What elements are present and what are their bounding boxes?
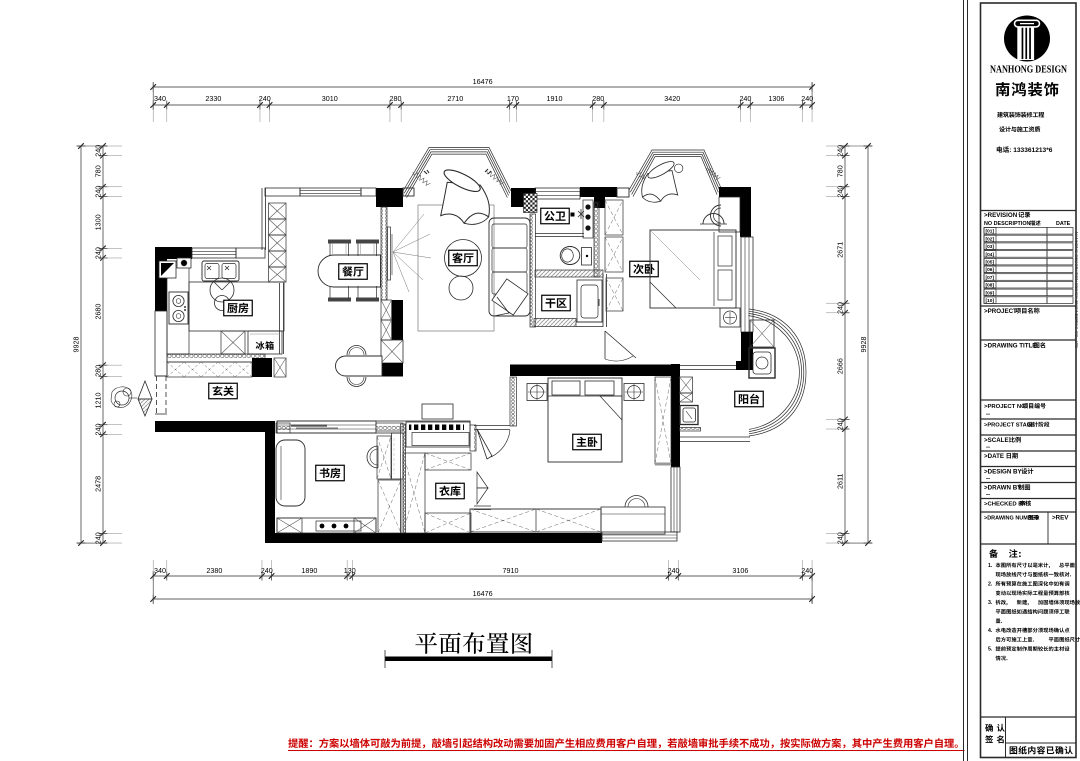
svg-text:>REV: >REV <box>1052 515 1069 522</box>
svg-text:[06]: [06] <box>986 267 995 273</box>
svg-text:170: 170 <box>507 94 519 103</box>
svg-text:2330: 2330 <box>205 94 221 103</box>
svg-text:2680: 2680 <box>94 304 103 320</box>
svg-text:780: 780 <box>94 165 103 177</box>
svg-text:2710: 2710 <box>447 94 463 103</box>
svg-text:4.: 4. <box>988 628 993 634</box>
svg-text:[10]: [10] <box>986 298 995 304</box>
svg-text:[09]: [09] <box>986 290 995 296</box>
svg-text:340: 340 <box>154 94 166 103</box>
svg-text:9928: 9928 <box>859 337 868 353</box>
svg-text:[08]: [08] <box>986 283 995 289</box>
svg-text:>DATE: >DATE <box>984 453 1004 460</box>
svg-text:780: 780 <box>836 165 845 177</box>
svg-text:2380: 2380 <box>206 566 222 575</box>
svg-text:3106: 3106 <box>732 566 748 575</box>
svg-text:240: 240 <box>667 566 679 575</box>
svg-text:1.: 1. <box>988 563 993 569</box>
svg-text:>PROJECT STAGE: >PROJECT STAGE <box>984 423 1035 429</box>
svg-text:1210: 1210 <box>93 393 102 409</box>
svg-text:240: 240 <box>801 94 813 103</box>
svg-text:240: 240 <box>93 247 102 259</box>
svg-text:240: 240 <box>739 94 751 103</box>
svg-text:240: 240 <box>259 94 271 103</box>
svg-text:280: 280 <box>592 94 604 103</box>
svg-text:--: -- <box>986 411 990 418</box>
svg-text:7910: 7910 <box>503 566 519 575</box>
svg-text:>SCALE: >SCALE <box>984 437 1009 444</box>
svg-text:280: 280 <box>390 94 402 103</box>
svg-text:130: 130 <box>344 566 356 575</box>
svg-text:1300: 1300 <box>94 214 103 230</box>
svg-text:>CHECKED BY: >CHECKED BY <box>984 502 1026 508</box>
svg-text:2.: 2. <box>988 582 993 588</box>
svg-text:1890: 1890 <box>301 566 317 575</box>
svg-text:[04]: [04] <box>986 252 995 258</box>
svg-text:16476: 16476 <box>473 77 493 86</box>
svg-text:[05]: [05] <box>986 260 995 266</box>
svg-text:240: 240 <box>835 302 844 314</box>
svg-text:2666: 2666 <box>836 358 845 374</box>
svg-text:--: -- <box>986 492 990 499</box>
svg-text:240: 240 <box>801 566 813 575</box>
svg-text:NANHONG DECORATION DESIGN ENGI: NANHONG DECORATION DESIGN ENGINEERING CO… <box>1074 232 1079 348</box>
svg-text:240: 240 <box>261 566 273 575</box>
svg-text:1910: 1910 <box>547 94 563 103</box>
svg-text:240: 240 <box>836 145 845 157</box>
svg-text:240: 240 <box>94 145 103 157</box>
svg-text:[01]: [01] <box>986 229 995 235</box>
svg-text:DATE: DATE <box>1056 221 1071 227</box>
svg-text:: 133361213*6: : 133361213*6 <box>1009 147 1053 154</box>
svg-text:NO DESCRIPTION: NO DESCRIPTION <box>984 221 1031 227</box>
svg-text:2671: 2671 <box>835 242 844 258</box>
svg-text:3.: 3. <box>988 600 993 606</box>
svg-text:>REVISION: >REVISION <box>984 212 1018 219</box>
svg-text:5.: 5. <box>988 647 993 653</box>
svg-text:240: 240 <box>94 532 103 544</box>
svg-text:1306: 1306 <box>768 94 784 103</box>
svg-text:16476: 16476 <box>473 589 493 598</box>
svg-text:340: 340 <box>154 566 166 575</box>
svg-text:2611: 2611 <box>835 473 844 488</box>
svg-text:NANHONG DESIGN: NANHONG DESIGN <box>990 65 1067 76</box>
svg-text:--: -- <box>986 476 990 483</box>
svg-text:280: 280 <box>94 365 103 377</box>
svg-text:[03]: [03] <box>986 244 995 250</box>
svg-text:9928: 9928 <box>71 337 80 353</box>
svg-text:240: 240 <box>93 424 102 436</box>
svg-text:[07]: [07] <box>986 275 995 281</box>
svg-text:>DRAWN BY: >DRAWN BY <box>984 485 1022 492</box>
svg-text:3420: 3420 <box>664 94 680 103</box>
svg-text:>PROJECT: >PROJECT <box>984 308 1017 315</box>
svg-text:>PROJECT NO.: >PROJECT NO. <box>984 404 1028 410</box>
svg-text:240: 240 <box>835 418 844 430</box>
svg-text:240: 240 <box>836 186 845 198</box>
svg-text:--: -- <box>986 444 990 451</box>
svg-text:240: 240 <box>94 186 103 198</box>
svg-text:[02]: [02] <box>986 236 995 242</box>
svg-text:2478: 2478 <box>94 476 103 492</box>
svg-text:3010: 3010 <box>322 94 338 103</box>
svg-text:>DESIGN BY: >DESIGN BY <box>984 469 1023 476</box>
svg-text:240: 240 <box>836 532 845 544</box>
svg-text:>DRAWING TITLE: >DRAWING TITLE <box>984 343 1036 350</box>
